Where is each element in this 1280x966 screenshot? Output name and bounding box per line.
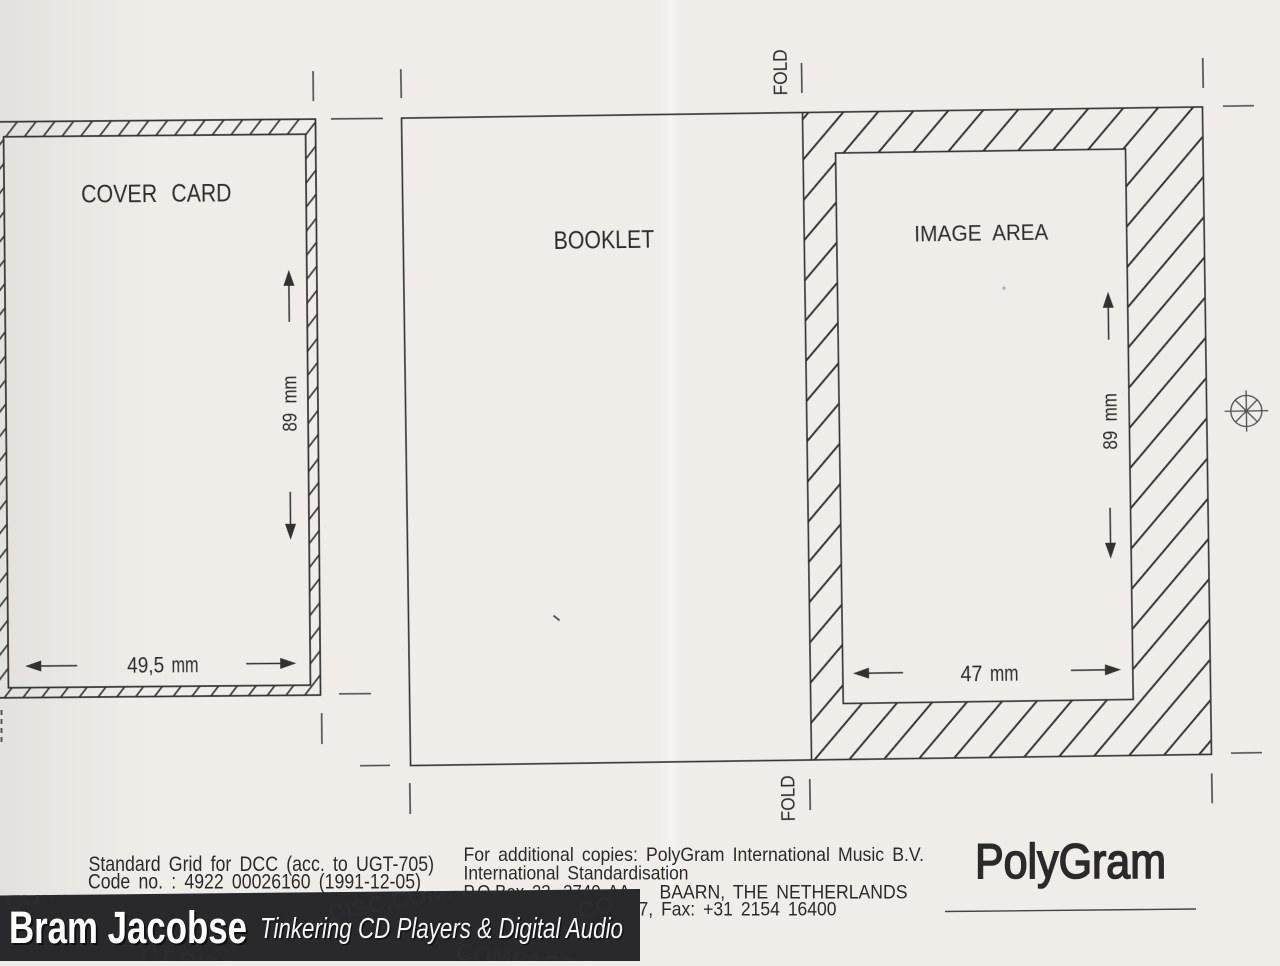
svg-text:Bram Jacobse: Bram Jacobse — [9, 902, 247, 953]
svg-text:47: 47 — [960, 661, 982, 686]
svg-text:Tinkering CD Players & Digital: Tinkering CD Players & Digital Audio — [260, 913, 623, 945]
svg-text:CARD: CARD — [171, 179, 231, 208]
svg-text:89 mm: 89 mm — [1100, 393, 1123, 450]
svg-text:Code no. : 4922 00026160 (1991: Code no. : 4922 00026160 (1991-12-05) — [88, 870, 421, 894]
svg-text:49,5: 49,5 — [127, 652, 164, 677]
svg-text:mm: mm — [171, 652, 198, 677]
svg-text:FOLD: FOLD — [770, 49, 793, 95]
svg-text:PolyGram: PolyGram — [975, 835, 1166, 889]
svg-text:AREA: AREA — [992, 220, 1048, 246]
svg-text:7, Fax: +31 2154 16400: 7, Fax: +31 2154 16400 — [639, 899, 837, 921]
svg-text:COVER: COVER — [81, 180, 157, 209]
svg-text:BOOKLET: BOOKLET — [553, 226, 654, 255]
svg-text:mm: mm — [990, 661, 1019, 686]
svg-text:IMAGE: IMAGE — [914, 221, 982, 247]
svg-text:FOLD: FOLD — [777, 775, 800, 821]
svg-text:89 mm: 89 mm — [279, 375, 301, 431]
